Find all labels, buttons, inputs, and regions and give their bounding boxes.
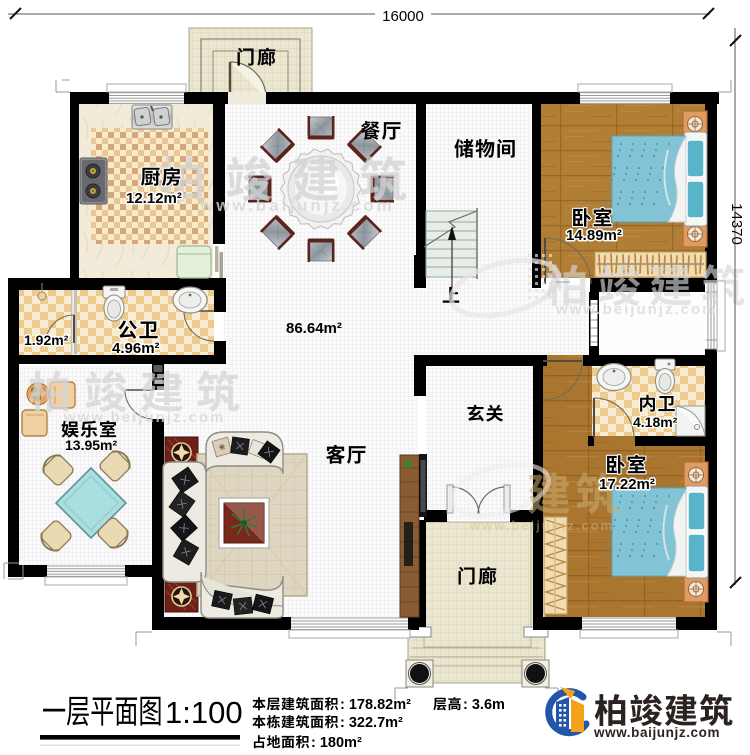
svg-text:4.96m²: 4.96m² (112, 340, 160, 357)
svg-text:4.18m²: 4.18m² (633, 414, 678, 430)
svg-text:www.baijunjz.com: www.baijunjz.com (593, 725, 720, 740)
svg-text:14370: 14370 (728, 203, 745, 245)
svg-text:1:100: 1:100 (165, 695, 243, 730)
svg-text:: 178.82m²: : 178.82m² (340, 697, 411, 713)
svg-text:: 180m²: : 180m² (311, 735, 362, 751)
svg-text:1.92m²: 1.92m² (24, 332, 69, 348)
svg-text:: 3.6m: : 3.6m (463, 697, 505, 713)
svg-text:www.beijunjz.com: www.beijunjz.com (469, 518, 614, 533)
svg-text:www.baijunjz.com: www.baijunjz.com (199, 196, 395, 215)
svg-text:14.89m²: 14.89m² (566, 227, 622, 244)
svg-text:www.beijunjz.com: www.beijunjz.com (555, 301, 717, 318)
svg-text:: 322.7m²: : 322.7m² (340, 715, 403, 731)
svg-text:86.64m²: 86.64m² (286, 320, 342, 337)
svg-text:13.95m²: 13.95m² (65, 437, 117, 453)
svg-text:17.22m²: 17.22m² (599, 476, 655, 493)
svg-text:16000: 16000 (382, 8, 424, 25)
svg-text:12.12m²: 12.12m² (126, 190, 182, 207)
